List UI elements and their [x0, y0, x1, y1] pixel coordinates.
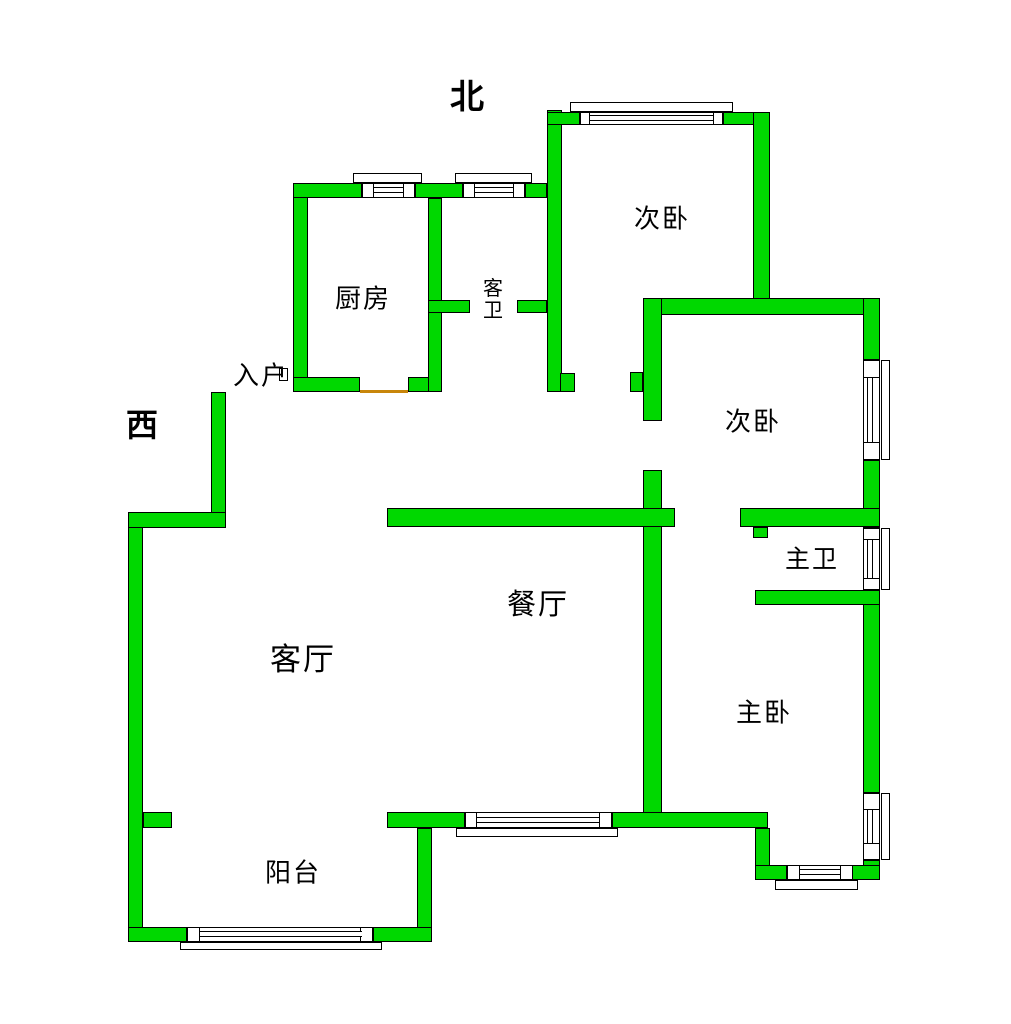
wall: [547, 112, 580, 125]
wall: [387, 812, 465, 828]
room-label-master-bathroom: 主卫: [785, 545, 839, 573]
room-label-guest-bathroom: 客卫: [482, 277, 505, 321]
wall: [852, 865, 880, 880]
master-bath-east-window-frame-post: [863, 528, 880, 540]
bedroom-north-window-sill: [570, 102, 733, 112]
wall: [755, 865, 787, 880]
wall: [863, 590, 880, 793]
room-label-living-room: 客厅: [270, 643, 336, 677]
dining-south-window-glazing: [477, 817, 599, 823]
wall: [612, 812, 768, 828]
kitchen-north-window-sill: [353, 173, 422, 183]
wall: [428, 300, 470, 313]
kitchen-north-window-frame-post: [362, 183, 374, 198]
guest-bath-north-window-frame-post: [513, 183, 525, 198]
wall: [428, 198, 442, 392]
room-label-dining-room: 餐厅: [507, 589, 569, 621]
wall: [143, 812, 172, 828]
master-bedroom-south-window-frame-post: [787, 865, 800, 880]
wall: [863, 298, 880, 360]
wall: [373, 927, 432, 942]
master-bedroom-south-window-sill: [775, 880, 858, 890]
bedroom-east-window-glazing: [867, 378, 873, 442]
wall: [517, 300, 547, 313]
master-bedroom-east-window-glazing: [867, 810, 873, 843]
kitchen-north-window-frame-post: [403, 183, 415, 198]
bedroom-north-window-glazing: [590, 115, 713, 121]
master-bedroom-east-window-sill: [881, 793, 890, 860]
guest-bath-north-window-frame-post: [463, 183, 475, 198]
bedroom-east-window-frame-post: [863, 360, 880, 378]
balcony-south-window-glazing: [200, 931, 362, 937]
master-bedroom-east-window-frame-post: [863, 843, 880, 860]
master-bedroom-south-window-frame-post: [840, 865, 853, 880]
balcony-south-window-frame-post: [187, 927, 200, 942]
master-bedroom-east-window-frame-post: [863, 793, 880, 810]
guest-bath-north-window-sill: [455, 173, 532, 183]
balcony-south-window-sill: [180, 942, 382, 950]
master-bath-east-window-glazing: [867, 540, 873, 578]
guest-bath-north-window-glazing: [475, 187, 513, 193]
bedroom-north-window-frame-post: [580, 112, 590, 125]
room-label-bedroom-north: 次卧: [634, 206, 690, 235]
wall: [643, 298, 880, 315]
room-label-entry: 入户: [233, 363, 289, 392]
wall: [740, 508, 880, 527]
bedroom-north-window-frame-post: [713, 112, 723, 125]
kitchen-north-window-glazing: [374, 187, 403, 193]
wall: [753, 527, 768, 538]
compass-north-label: 北: [450, 70, 484, 119]
room-label-balcony: 阳台: [265, 860, 321, 889]
master-bath-east-window-sill: [881, 528, 890, 590]
wall: [293, 377, 360, 392]
wall: [293, 183, 362, 198]
compass-west-label: 西: [126, 400, 158, 446]
floorplan-canvas: 北 西 厨房客卫入户次卧次卧主卫餐厅客厅主卧阳台: [0, 0, 1011, 1024]
dining-south-window-sill: [456, 828, 618, 837]
wall: [417, 828, 432, 942]
wall: [753, 112, 770, 302]
wall: [643, 298, 662, 421]
wall: [128, 512, 143, 942]
wall: [128, 927, 187, 942]
master-bedroom-south-window-glazing: [800, 869, 840, 875]
room-label-bedroom-east: 次卧: [725, 409, 781, 438]
wall: [630, 372, 643, 392]
dining-south-window-frame-post: [599, 812, 612, 828]
wall: [211, 392, 226, 528]
bedroom-east-window-sill: [881, 360, 890, 460]
wall: [755, 590, 880, 605]
wall: [547, 110, 562, 392]
kitchen-door-threshold: [360, 390, 408, 393]
wall: [128, 512, 226, 528]
wall: [560, 373, 575, 392]
bedroom-east-window-frame-post: [863, 442, 880, 460]
room-label-master-bedroom: 主卧: [736, 700, 792, 729]
wall: [293, 183, 308, 392]
room-label-kitchen: 厨房: [335, 286, 391, 315]
wall: [415, 183, 463, 198]
dining-south-window-frame-post: [465, 812, 477, 828]
master-bath-east-window-frame-post: [863, 578, 880, 590]
wall: [387, 508, 675, 527]
wall: [525, 183, 547, 198]
